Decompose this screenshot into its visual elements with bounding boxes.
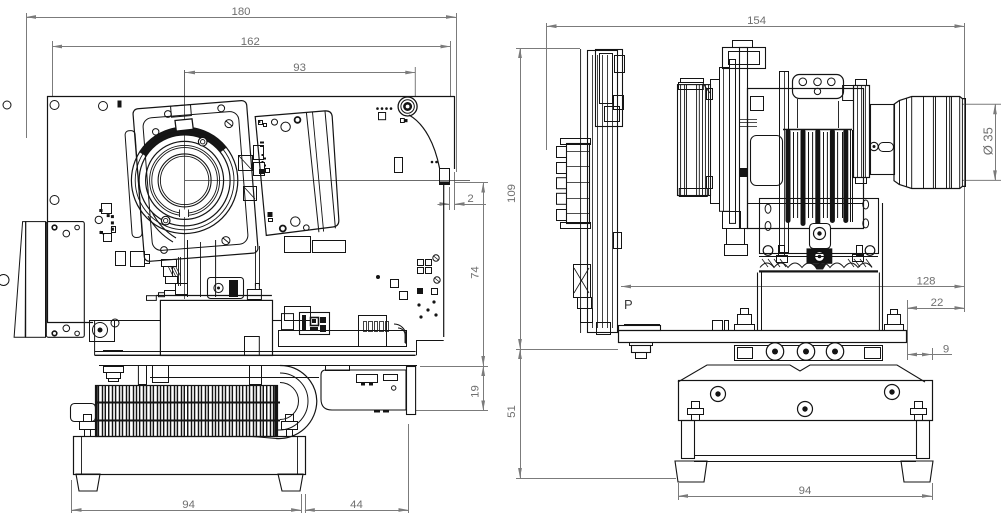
svg-text:93: 93 [293, 62, 306, 74]
svg-text:154: 154 [747, 15, 766, 27]
svg-text:51: 51 [506, 405, 518, 418]
svg-text:P: P [624, 297, 633, 312]
svg-text:94: 94 [182, 499, 195, 511]
svg-text:9: 9 [943, 344, 949, 356]
svg-text:19: 19 [470, 385, 482, 398]
svg-text:162: 162 [241, 36, 260, 48]
svg-text:74: 74 [470, 266, 482, 279]
svg-text:109: 109 [506, 184, 518, 203]
svg-text:128: 128 [916, 276, 935, 288]
svg-text:2: 2 [467, 193, 473, 205]
svg-text:44: 44 [350, 499, 363, 511]
svg-text:22: 22 [931, 297, 944, 309]
svg-text:Ø 35: Ø 35 [981, 127, 996, 155]
svg-text:180: 180 [231, 6, 250, 18]
svg-text:94: 94 [799, 485, 812, 497]
